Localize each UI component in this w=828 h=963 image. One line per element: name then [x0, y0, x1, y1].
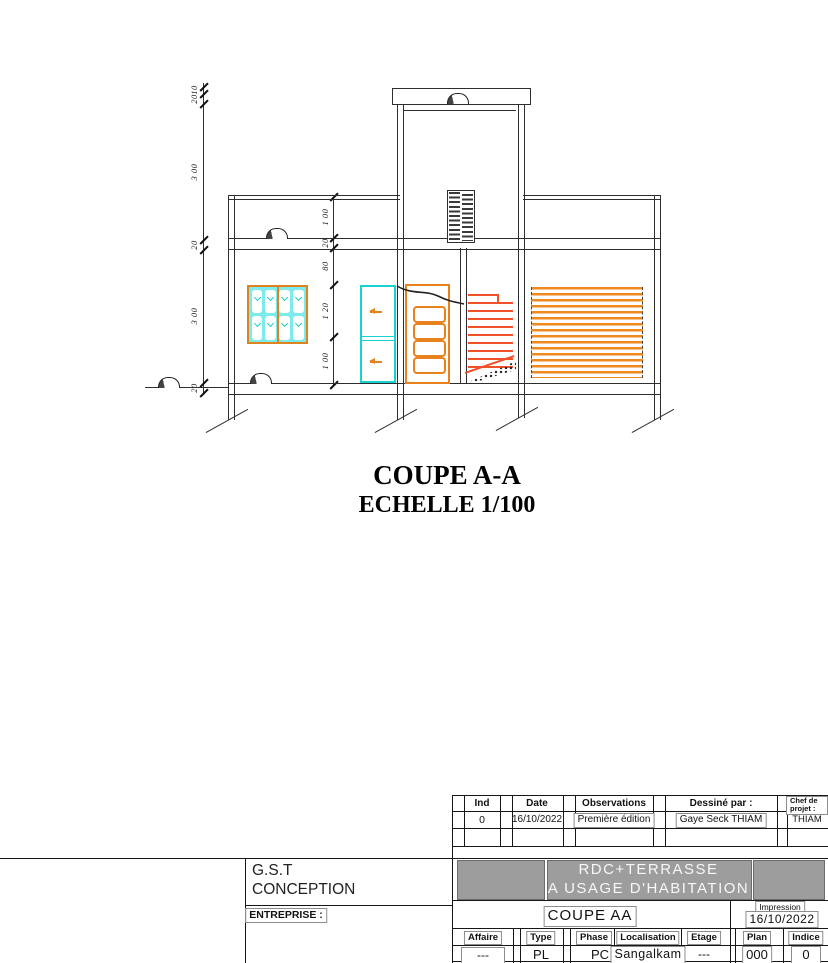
parapet-line: [228, 195, 400, 200]
door-swing-arrow-icon: [370, 361, 382, 363]
field-phase-label: Phase: [576, 931, 612, 945]
door-swing-arrow-icon: [370, 311, 382, 313]
project-title: RDC+TERRASSE A USAGE D'HABITATION: [547, 860, 750, 898]
foundation-break: [496, 407, 539, 431]
window-pane: [279, 290, 290, 314]
staircase: [466, 294, 514, 384]
field-localisation-value: Sangalkam: [610, 946, 685, 963]
rev-header-date: Date: [526, 798, 548, 809]
foundation-break: [632, 409, 675, 433]
garage-door: [531, 287, 643, 378]
field-localisation-label: Localisation: [616, 931, 679, 945]
dim-label: 3 00: [189, 164, 199, 181]
company-name-line2: CONCEPTION: [252, 880, 355, 899]
project-title-line1: RDC+TERRASSE: [547, 860, 750, 879]
field-indice-value: 0: [791, 946, 821, 963]
rev-header-observations: Observations: [582, 798, 646, 809]
dim-label: 1 00: [320, 353, 330, 370]
window-pane: [265, 316, 276, 340]
field-etage-value: ---: [698, 947, 710, 961]
drawing-sheet: 10 20 3 00 20 3 00 20 1 00 20 80 1 20 1 …: [0, 0, 828, 963]
parapet-line: [523, 195, 661, 200]
floor-slab: [228, 383, 661, 395]
field-affaire-label: Affaire: [464, 931, 502, 945]
dim-label: 3 00: [189, 308, 199, 325]
field-plan-value: 000: [742, 946, 772, 963]
dim-label: 1 20: [320, 303, 330, 320]
tower-inner-line: [404, 110, 516, 111]
company-cell: G.S.T CONCEPTION: [252, 861, 355, 899]
louver-vent: [447, 190, 475, 243]
window-pane: [293, 290, 304, 314]
window-pane: [265, 290, 276, 314]
level-marker-icon: [250, 373, 272, 384]
window-pane: [252, 316, 263, 340]
impression-date: 16/10/2022: [745, 911, 818, 928]
field-plan-label: Plan: [743, 931, 771, 945]
rev-dessine-value: Gaye Seck THIAM: [676, 813, 767, 828]
window-pane: [279, 316, 290, 340]
rev-header-ind: Ind: [475, 798, 490, 809]
roof-slab: [228, 238, 661, 250]
banner-block-left: [457, 860, 545, 900]
project-title-line2: A USAGE D'HABITATION: [547, 879, 750, 898]
dim-label: 20: [189, 94, 199, 104]
dim-label: 20: [189, 240, 199, 250]
rev-ind-value: 0: [479, 814, 485, 826]
level-marker-icon: [158, 377, 180, 388]
rev-header-dessine-par: Dessiné par :: [690, 798, 753, 809]
rev-observations-value: Première édition: [574, 813, 655, 828]
rev-date-value: 16/10/2022: [512, 814, 562, 825]
level-marker-icon: [266, 228, 288, 239]
drawing-name: COUPE AA: [544, 906, 637, 927]
rev-header-chef-projet: Chef de projet :: [786, 796, 828, 815]
section-scale: ECHELLE 1/100: [294, 492, 600, 519]
company-name-line1: G.S.T: [252, 861, 355, 880]
section-break-curve: [396, 281, 466, 309]
wall: [397, 104, 404, 420]
rev-chef-value: THIAM: [792, 814, 822, 825]
banner-block-right: [753, 860, 825, 900]
foundation-break: [206, 409, 249, 433]
window: [247, 285, 308, 344]
level-marker-icon: [447, 93, 469, 104]
section-title: COUPE A-A: [294, 460, 600, 491]
foundation-break: [375, 409, 418, 433]
entreprise-label: ENTREPRISE :: [245, 908, 327, 923]
field-etage-label: Etage: [687, 931, 721, 945]
wall: [518, 104, 525, 418]
dim-label: 80: [320, 261, 330, 271]
field-indice-label: Indice: [788, 931, 823, 945]
field-type-label: Type: [526, 931, 555, 945]
window-pane: [252, 290, 263, 314]
window-pane: [293, 316, 304, 340]
field-type-value: PL: [533, 947, 549, 962]
entry-door: [360, 285, 396, 383]
field-phase-value: PC: [591, 947, 609, 962]
dim-label: 1 00: [320, 209, 330, 226]
field-affaire-value: ---: [461, 947, 505, 963]
